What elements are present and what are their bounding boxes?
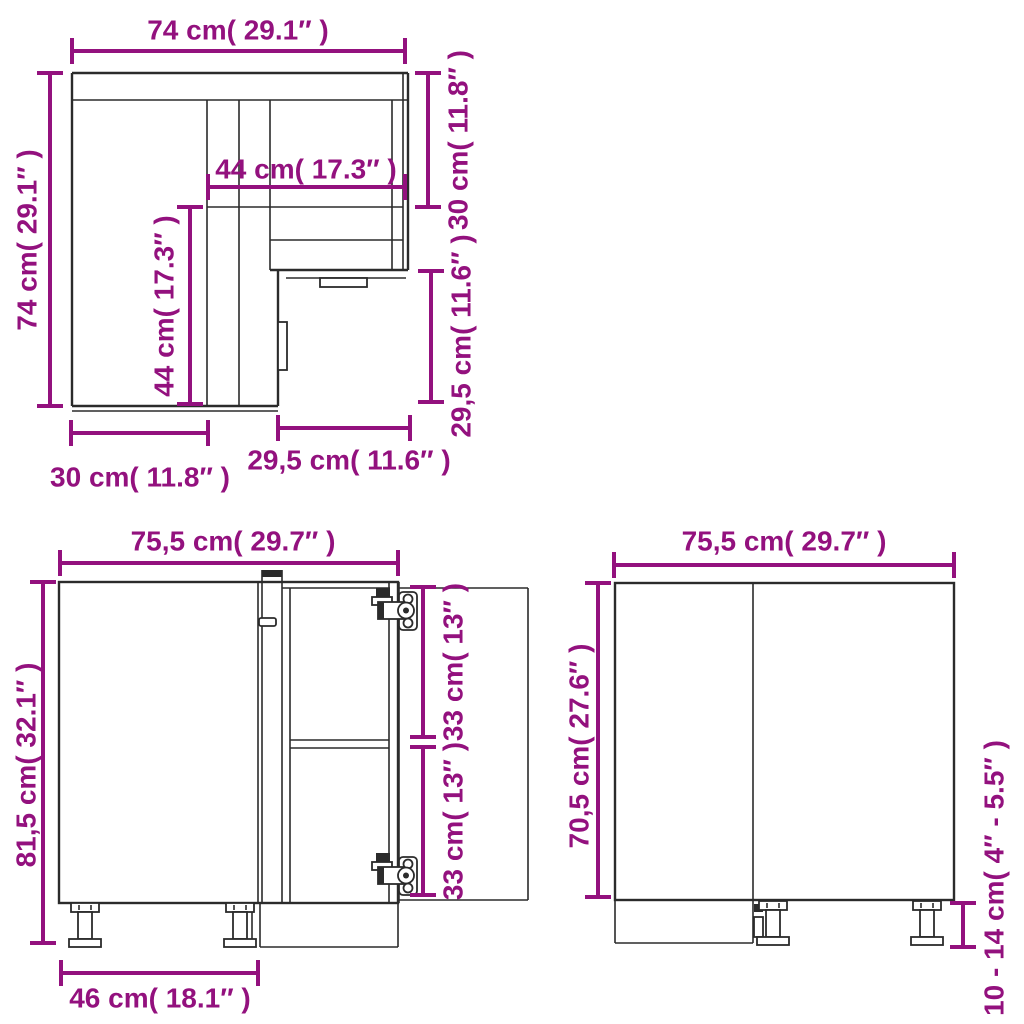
dim-front-door-width: 46 cm( 18.1″ ) bbox=[61, 960, 258, 1014]
diagram-canvas: 74 cm( 29.1″ ) 74 cm( 29.1″ ) 44 cm( 17.… bbox=[0, 0, 1024, 1024]
leg-bracket-icon bbox=[754, 917, 763, 937]
dim-top-right-lower: 29,5 cm( 11.6″ ) bbox=[418, 234, 477, 437]
dim-label: 10 - 14 cm( 4″ - 5.5″ ) bbox=[979, 740, 1010, 1016]
dim-top-bottom-left: 30 cm( 11.8″ ) bbox=[50, 420, 230, 493]
side-view: 75,5 cm( 29.7″ ) 70,5 cm( 27.6″ ) 10 - 1… bbox=[564, 526, 1010, 1016]
dim-label: 46 cm( 18.1″ ) bbox=[69, 983, 251, 1014]
dim-side-height: 70,5 cm( 27.6″ ) bbox=[564, 583, 612, 897]
side-view-outline bbox=[615, 583, 954, 943]
dim-label: 74 cm( 29.1″ ) bbox=[12, 149, 43, 331]
bottom-hinge-icon bbox=[372, 853, 417, 895]
door-knob-icon bbox=[259, 618, 276, 626]
dim-top-inner-width: 44 cm( 17.3″ ) bbox=[208, 154, 405, 201]
top-view-outline bbox=[72, 73, 408, 411]
dim-top-depth: 74 cm( 29.1″ ) bbox=[12, 73, 64, 406]
dim-label: 81,5 cm( 32.1″ ) bbox=[11, 663, 42, 868]
dim-top-inner-depth: 44 cm( 17.3″ ) bbox=[149, 207, 204, 404]
leg-icon bbox=[911, 901, 943, 945]
dim-front-width: 75,5 cm( 29.7″ ) bbox=[60, 526, 398, 577]
dim-label: 74 cm( 29.1″ ) bbox=[147, 15, 329, 46]
dim-label: 30 cm( 11.8″ ) bbox=[443, 50, 474, 230]
dim-top-bottom-right: 29,5 cm( 11.6″ ) bbox=[247, 415, 450, 476]
top-view: 74 cm( 29.1″ ) 74 cm( 29.1″ ) 44 cm( 17.… bbox=[12, 15, 477, 493]
dim-front-height: 81,5 cm( 32.1″ ) bbox=[11, 582, 57, 943]
dim-front-upper-compartment: 33 cm( 13″ ) bbox=[410, 583, 469, 741]
dim-side-leg-height: 10 - 14 cm( 4″ - 5.5″ ) bbox=[950, 740, 1010, 1016]
dim-label: 29,5 cm( 11.6″ ) bbox=[247, 445, 450, 476]
dim-top-right-upper: 30 cm( 11.8″ ) bbox=[415, 50, 474, 230]
dim-label: 75,5 cm( 29.7″ ) bbox=[131, 526, 336, 557]
dim-side-width: 75,5 cm( 29.7″ ) bbox=[614, 526, 954, 579]
dim-label: 30 cm( 11.8″ ) bbox=[50, 462, 230, 493]
furniture-dimension-diagram: { "colors": { "accent": "#93117E", "line… bbox=[0, 0, 1024, 1024]
dim-label: 44 cm( 17.3″ ) bbox=[149, 215, 180, 397]
dim-label: 33 cm( 13″ ) bbox=[438, 742, 469, 900]
dim-label: 75,5 cm( 29.7″ ) bbox=[682, 526, 887, 557]
dim-label: 70,5 cm( 27.6″ ) bbox=[564, 644, 595, 849]
hinge-cap-icon bbox=[262, 570, 282, 577]
dim-label: 33 cm( 13″ ) bbox=[438, 583, 469, 741]
handle-icon bbox=[278, 322, 287, 370]
dim-label: 29,5 cm( 11.6″ ) bbox=[446, 234, 477, 437]
handle-icon bbox=[320, 278, 367, 287]
dim-top-width: 74 cm( 29.1″ ) bbox=[72, 15, 405, 65]
dim-front-lower-compartment: 33 cm( 13″ ) bbox=[410, 742, 469, 900]
dim-label: 44 cm( 17.3″ ) bbox=[215, 154, 397, 185]
top-hinge-icon bbox=[372, 588, 417, 630]
leg-icon bbox=[69, 903, 101, 947]
front-view: 75,5 cm( 29.7″ ) 81,5 cm( 32.1″ ) 33 cm(… bbox=[11, 526, 529, 1014]
